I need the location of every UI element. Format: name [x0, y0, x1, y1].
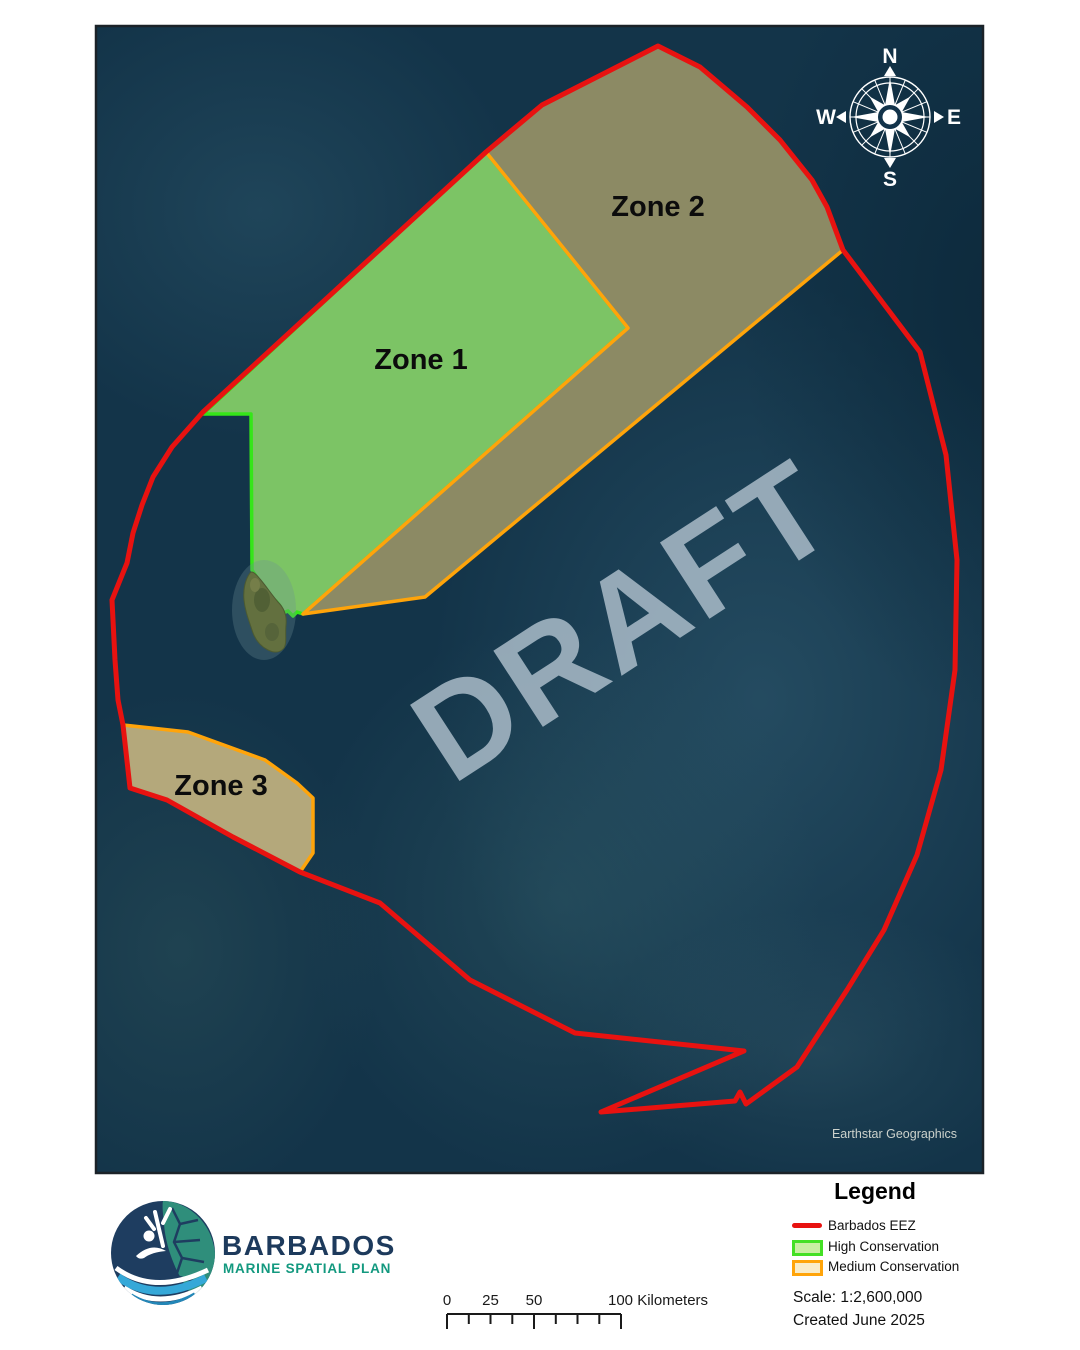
scalebar-label-50: 50 — [526, 1292, 543, 1309]
scalebar-label-100-kilometers: 100 Kilometers — [608, 1292, 708, 1309]
barbados-msp-logo-icon — [106, 1196, 220, 1310]
zone-1-label: Zone 1 — [374, 344, 467, 376]
medium-conservation-swatch — [792, 1260, 823, 1276]
logo-subtitle: MARINE SPATIAL PLAN — [223, 1261, 391, 1276]
legend-title: Legend — [790, 1178, 960, 1205]
compass-n-label: N — [882, 45, 897, 68]
eez-line-swatch — [792, 1223, 822, 1228]
created-date-text: Created June 2025 — [793, 1312, 925, 1330]
bathymetry-patch — [600, 910, 1040, 1190]
scale-text: Scale: 1:2,600,000 — [793, 1289, 922, 1307]
compass-s-label: S — [883, 168, 897, 191]
basemap-attribution: Earthstar Geographics — [832, 1127, 957, 1141]
logo-title: BARBADOS — [222, 1230, 396, 1262]
scale-bar: 0 25 50 100 Kilometers — [430, 1285, 750, 1335]
zone-2-label: Zone 2 — [611, 191, 704, 223]
scalebar-label-25: 25 — [482, 1292, 499, 1309]
barbados-island — [232, 560, 296, 660]
page: DRAFT Zone 1 Zone 2 Zone 3 — [0, 0, 1080, 1350]
compass-w-label: W — [816, 106, 836, 129]
zone-3-label: Zone 3 — [174, 770, 267, 802]
legend-item-label: High Conservation — [828, 1239, 939, 1254]
high-conservation-swatch — [792, 1240, 823, 1256]
legend-item-label: Barbados EEZ — [828, 1218, 916, 1233]
map-canvas: DRAFT Zone 1 Zone 2 Zone 3 — [0, 0, 1080, 1350]
legend-item-label: Medium Conservation — [828, 1259, 959, 1274]
scalebar-label-0: 0 — [443, 1292, 451, 1309]
compass-e-label: E — [947, 106, 961, 129]
